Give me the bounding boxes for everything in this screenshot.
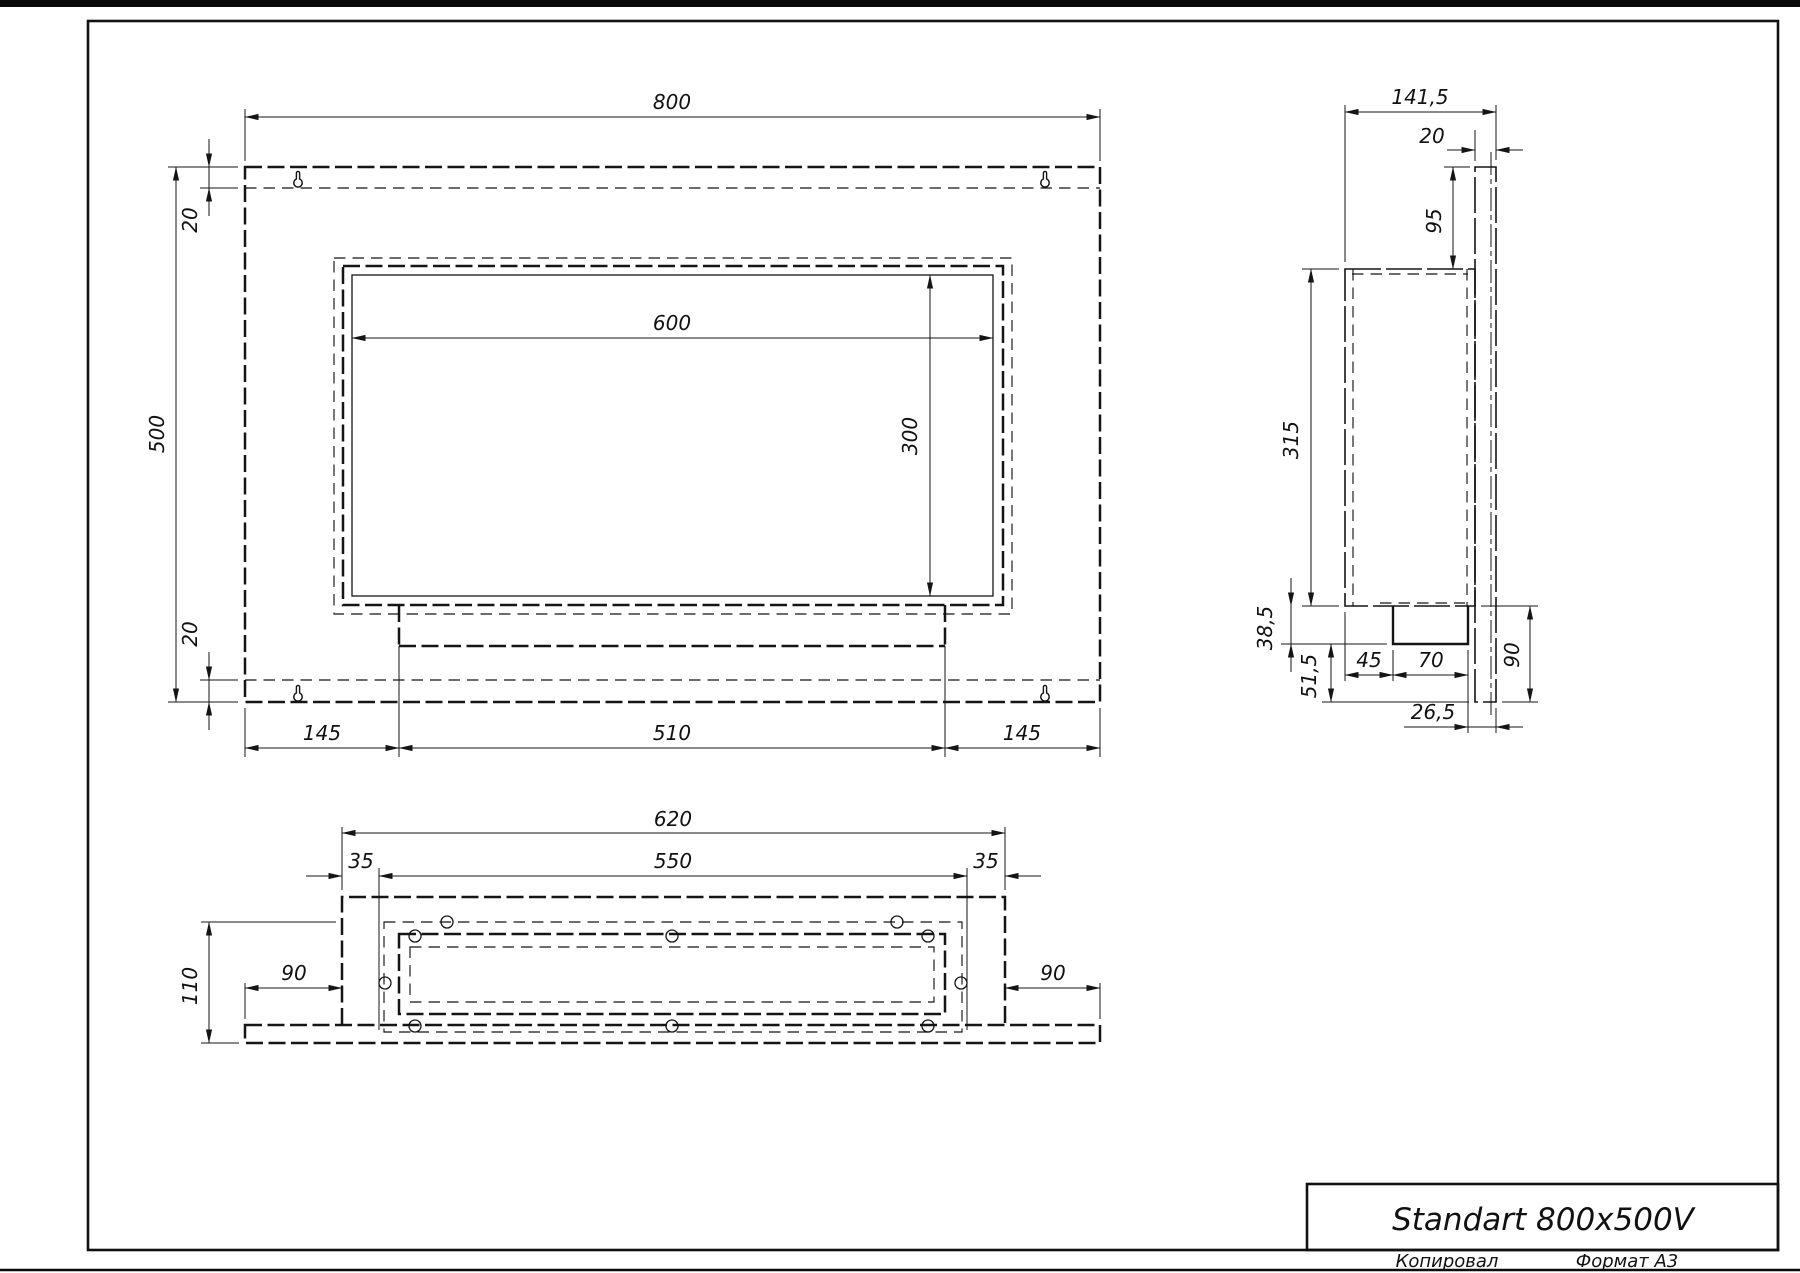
dim-tray-width-label: 510 <box>653 721 691 745</box>
wall-plate-strip <box>245 1025 1100 1043</box>
dim-front-top-inset-label: 20 <box>178 207 202 232</box>
dim-inset-left-label: 35 <box>348 849 373 873</box>
dim-bottom-depth-label: 110 <box>178 967 202 1005</box>
drawing-sheet: 800 500 20 20 600 <box>0 0 1800 1273</box>
dim-top-to-body-label: 95 <box>1422 208 1446 233</box>
keyhole-mount-icon <box>1041 685 1049 701</box>
title-block: Standart 800x500V Копировал Формат А3 <box>1307 1184 1778 1272</box>
dim-body-height-label: 315 <box>1279 421 1303 459</box>
dim-front-width-label: 800 <box>653 90 691 114</box>
dim-burner-to-plate-label: 26,5 <box>1411 700 1456 724</box>
dim-burner-offset-label: 45 <box>1356 648 1381 672</box>
wall-plate <box>1475 167 1496 702</box>
dim-front-bottom-inset: 20 <box>178 621 238 730</box>
dim-wing-right-label: 90 <box>1040 961 1065 985</box>
model-name: Standart 800x500V <box>1392 1202 1697 1238</box>
dim-tray-to-right-label: 145 <box>1003 721 1041 745</box>
keyhole-mount-icon <box>1041 171 1049 187</box>
dim-burner-to-plate: 26,5 <box>1404 700 1523 733</box>
dim-inner-width-label: 550 <box>654 849 692 873</box>
dim-plate-thickness-label: 20 <box>1419 124 1444 148</box>
dim-burner-width-label: 70 <box>1418 648 1443 672</box>
dim-bottom-inner-chain: 35 550 35 <box>306 849 1041 876</box>
burner-tray-hidden <box>399 605 945 646</box>
bottom-view: 620 35 550 35 110 90 90 <box>178 807 1100 1043</box>
dim-opening-width: 600 <box>352 311 993 338</box>
dim-total-depth: 141,5 <box>1345 85 1496 262</box>
front-view: 800 500 20 20 600 <box>145 90 1100 757</box>
dim-wing-left-label: 90 <box>281 961 306 985</box>
dim-front-width: 800 <box>245 90 1100 161</box>
body-outline <box>342 897 1005 1025</box>
dim-wing-right: 90 <box>1005 961 1100 1019</box>
dim-plate-below-body-label: 90 <box>1500 642 1524 667</box>
dim-front-top-inset: 20 <box>178 139 238 233</box>
keyhole-mount-icon <box>294 171 302 187</box>
dim-front-height-label: 500 <box>145 415 169 453</box>
dim-opening-width-label: 600 <box>653 311 691 335</box>
dim-opening-height-label: 300 <box>898 417 922 455</box>
drawing-border <box>88 21 1778 1250</box>
technical-drawing: 800 500 20 20 600 <box>0 0 1800 1273</box>
dim-inset-right-label: 35 <box>973 849 998 873</box>
dim-front-bottom-inset-label: 20 <box>178 621 202 646</box>
format-label: Формат А3 <box>1576 1251 1679 1272</box>
dim-tray-drop-label: 38,5 <box>1253 606 1277 651</box>
dim-bottom-body-width-label: 620 <box>654 807 692 831</box>
keyhole-mount-icon <box>294 685 302 701</box>
side-view: 141,5 20 95 315 38,5 <box>1253 85 1538 733</box>
scan-top-edge <box>0 0 1800 7</box>
dim-total-depth-label: 141,5 <box>1391 85 1448 109</box>
dim-body-height: 315 <box>1279 269 1339 606</box>
body <box>1345 269 1475 606</box>
copied-label: Копировал <box>1396 1251 1499 1272</box>
dim-lower-gap-label: 51,5 <box>1297 654 1321 699</box>
dim-top-to-body: 95 <box>1422 167 1470 269</box>
dim-opening-height: 300 <box>898 275 930 596</box>
burner-block <box>1393 606 1468 644</box>
dim-plate-thickness: 20 <box>1419 124 1523 161</box>
dim-left-to-tray-label: 145 <box>303 721 341 745</box>
dim-plate-below-body: 90 <box>1481 606 1538 702</box>
dim-wing-left: 90 <box>245 961 342 1019</box>
